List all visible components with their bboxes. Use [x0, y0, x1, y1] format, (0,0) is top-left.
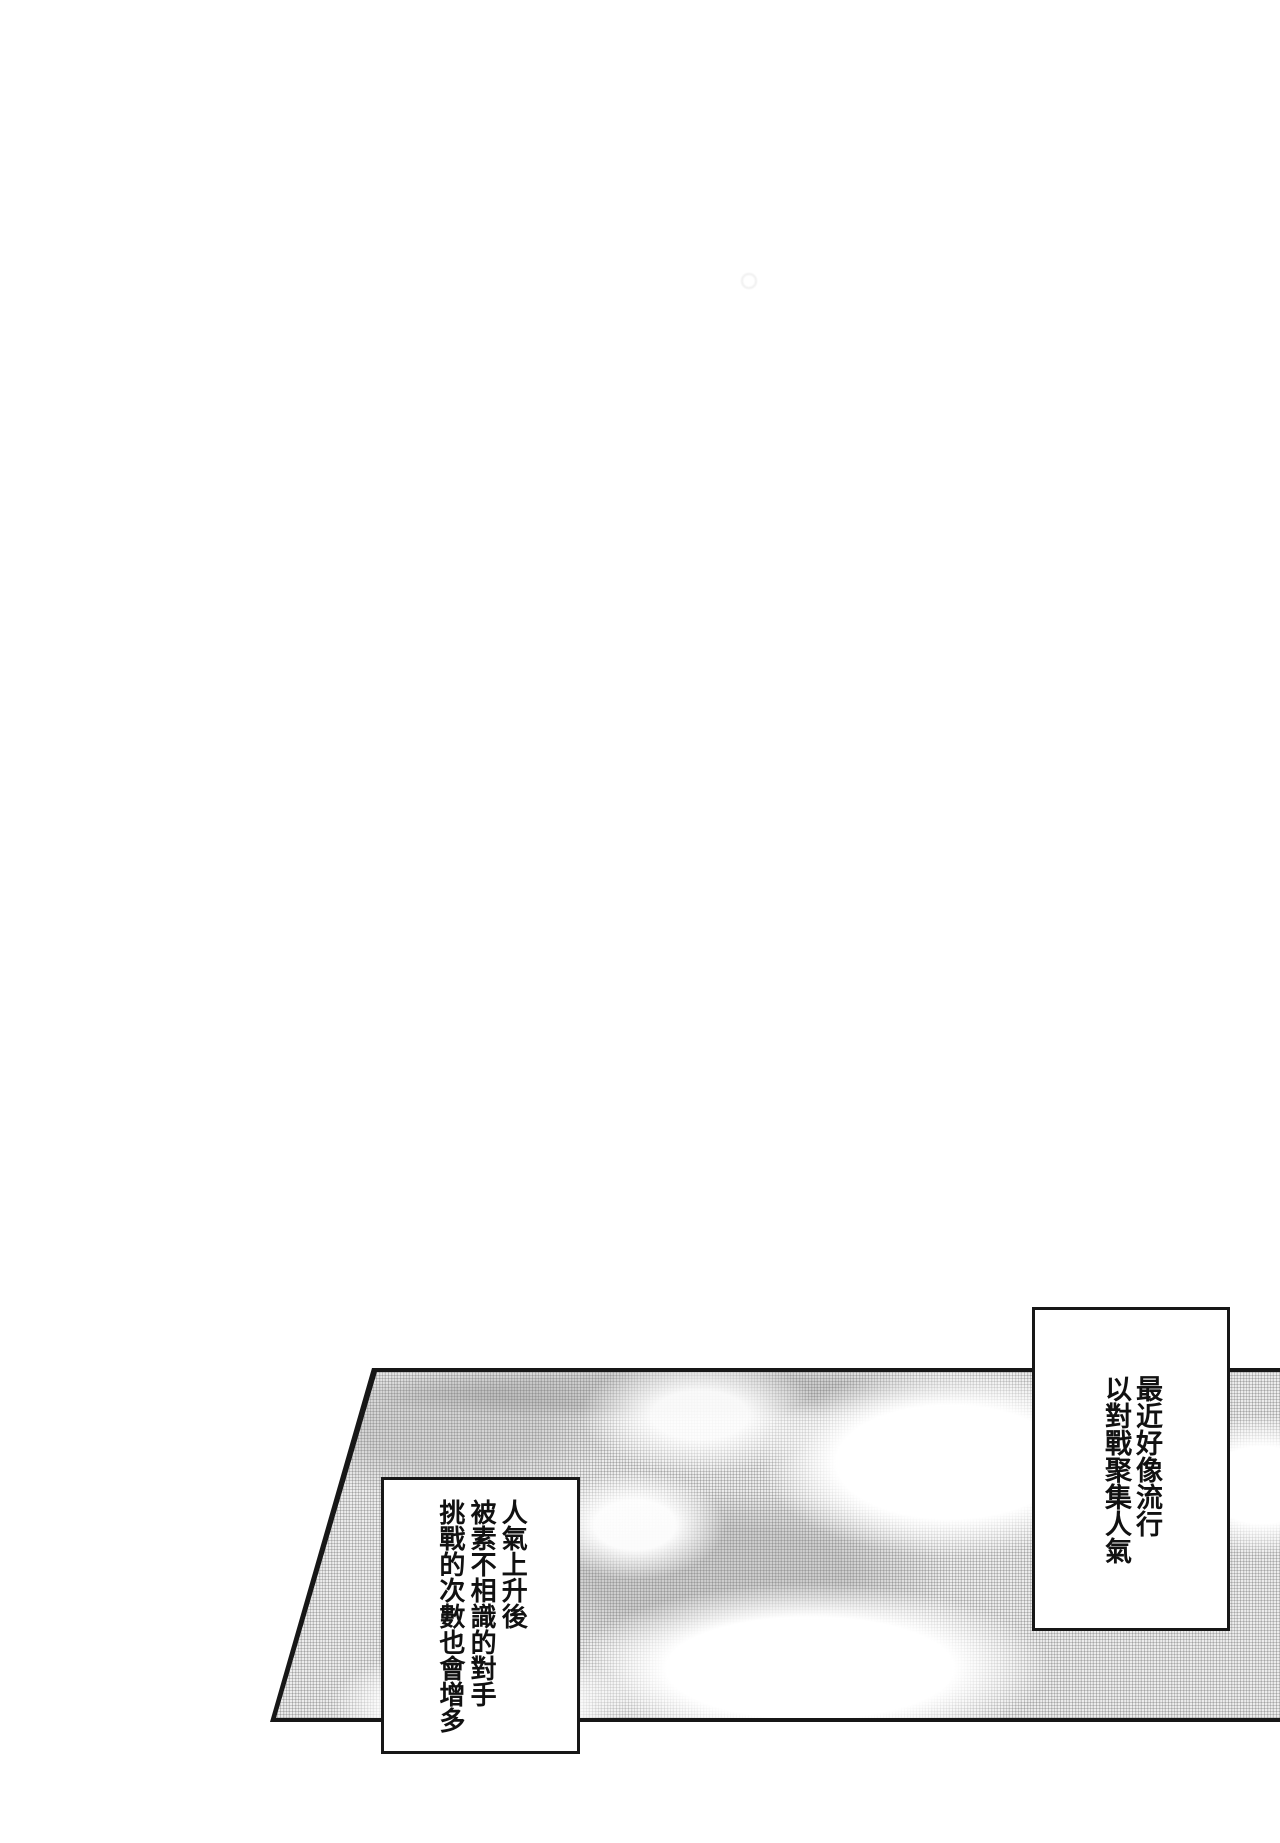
- caption-box-bottom-left: 人氣上升後 被素不相識的對手 挑戰的次數也會增多: [381, 1477, 580, 1754]
- caption-text-bottom-left: 人氣上升後 被素不相識的對手 挑戰的次數也會增多: [434, 1499, 528, 1733]
- scan-smudge: [740, 272, 758, 290]
- caption-text-top-right: 最近好像流行 以對戰聚集人氣: [1100, 1375, 1162, 1564]
- manga-page: 最近好像流行 以對戰聚集人氣 人氣上升後 被素不相識的對手 挑戰的次數也會增多: [0, 0, 1280, 1843]
- caption-box-top-right: 最近好像流行 以對戰聚集人氣: [1032, 1307, 1230, 1631]
